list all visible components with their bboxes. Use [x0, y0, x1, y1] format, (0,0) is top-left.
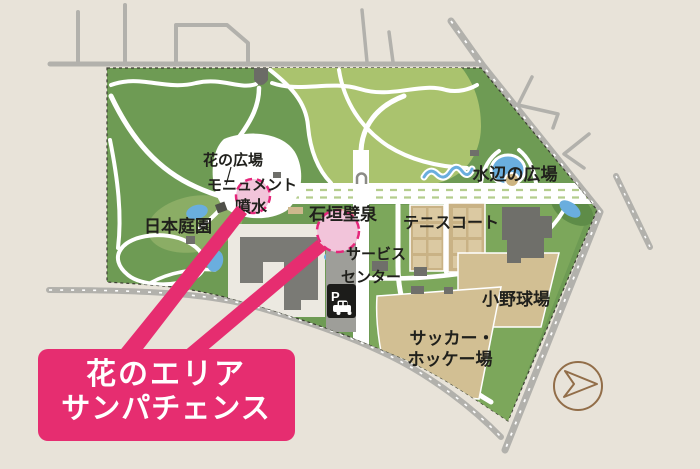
label-monument-line1: モニュメント	[207, 177, 297, 194]
label-ishigaki-wall-fountain: 石垣壁泉	[308, 204, 378, 224]
label-japanese-garden: 日本庭園	[144, 216, 212, 236]
park-map-canvas: P 花の広場 モニュメント 噴水 日本庭園 石垣壁泉 サービス センター 水辺の…	[0, 0, 700, 469]
parking-icon: P	[327, 284, 356, 318]
label-soccer-hockey-line2: ホッケー場	[408, 350, 493, 369]
callout-box: 花のエリア サンパチェンス	[38, 349, 295, 441]
label-service-center-line2: センター	[341, 269, 401, 286]
arch-icon	[354, 170, 369, 185]
label-service-center-line1: サービス	[346, 246, 406, 263]
label-soccer-hockey-line1: サッカー・	[410, 329, 495, 348]
callout-line1: 花のエリア	[86, 358, 246, 391]
label-baseball-field: 小野球場	[482, 290, 550, 309]
label-tennis-court: テニスコート	[403, 215, 499, 232]
park-map: P 花の広場 モニュメント 噴水 日本庭園 石垣壁泉 サービス センター 水辺の…	[0, 0, 700, 469]
label-flower-plaza: 花の広場	[203, 151, 263, 169]
label-waterside-plaza: 水辺の広場	[473, 164, 558, 184]
promenade	[272, 183, 593, 204]
entrance-gate-icon	[254, 68, 268, 85]
callout-line2: サンパチェンス	[61, 393, 270, 425]
